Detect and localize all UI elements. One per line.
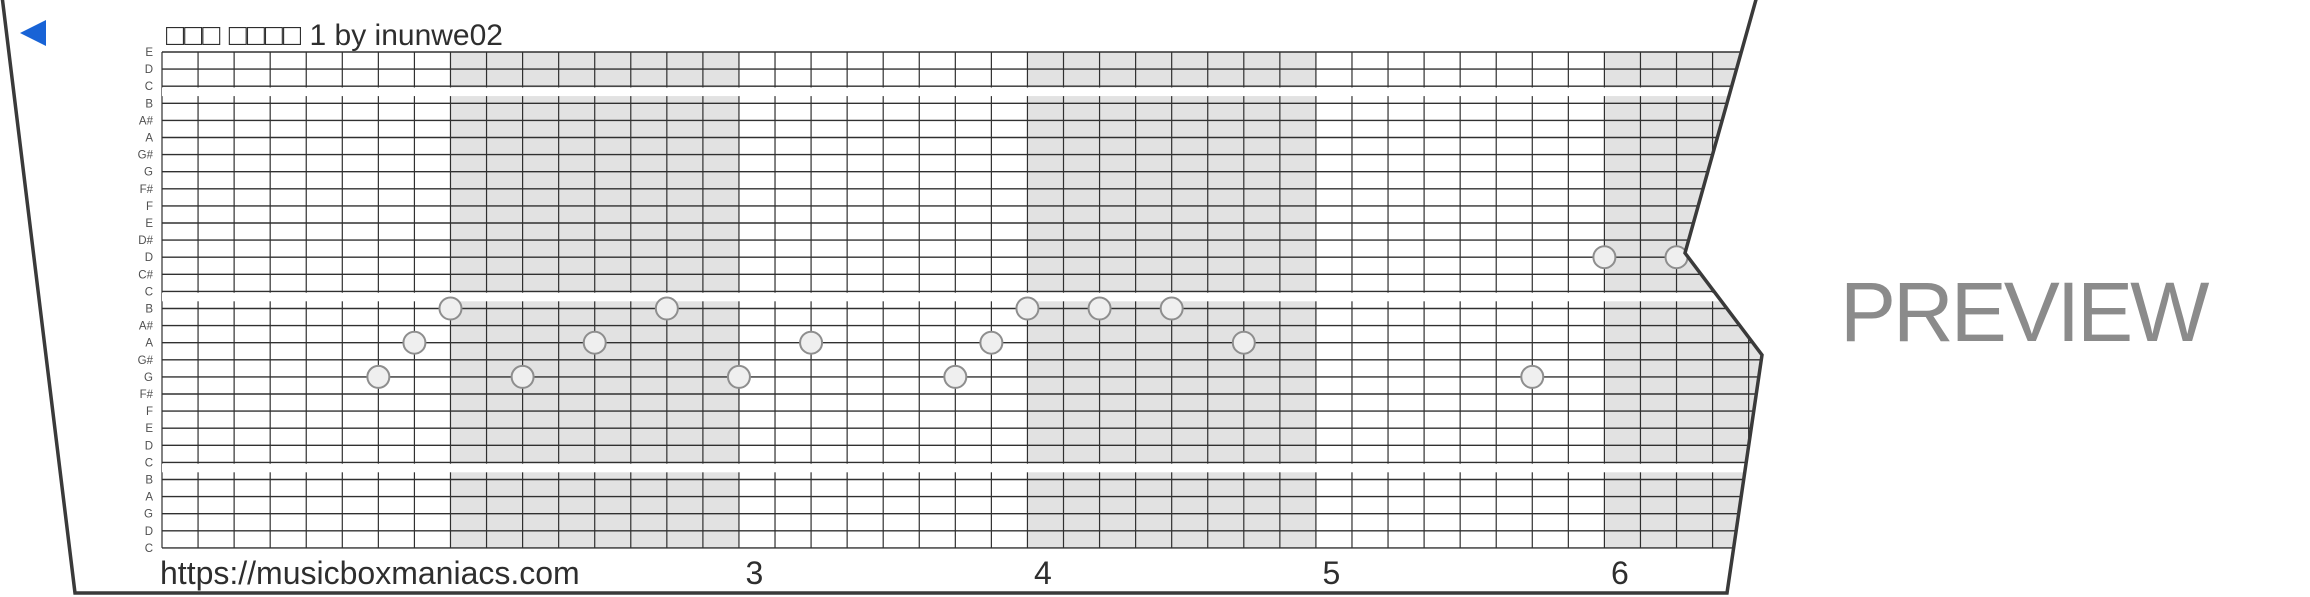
note-label: G: [144, 509, 153, 521]
note-label: A: [145, 338, 153, 350]
note-marker: [1016, 298, 1038, 320]
note-marker: [944, 366, 966, 388]
note-label: F: [146, 201, 153, 213]
note-marker: [1593, 246, 1615, 268]
octave-gap: [162, 88, 1900, 97]
note-marker: [980, 332, 1002, 354]
note-label: A#: [139, 115, 154, 127]
note-marker: [584, 332, 606, 354]
note-label: A: [145, 492, 153, 504]
note-label: G: [144, 372, 153, 384]
note-label: F#: [140, 184, 154, 196]
note-marker: [1521, 366, 1543, 388]
note-label: F: [146, 406, 153, 418]
melody-title: □□□ □□□□ 1 by inunwe02: [166, 19, 503, 52]
note-label: C: [145, 543, 153, 555]
note-label: D: [145, 64, 153, 76]
note-label: C: [145, 81, 153, 93]
note-marker: [1161, 298, 1183, 320]
note-label: C#: [138, 269, 153, 281]
note-label: D#: [138, 235, 153, 247]
beat-number: 6: [1611, 555, 1629, 591]
note-marker: [728, 366, 750, 388]
note-label: D: [145, 526, 153, 538]
note-marker: [403, 332, 425, 354]
beat-number: 5: [1323, 555, 1341, 591]
note-label: D: [145, 252, 153, 264]
note-label: A#: [139, 321, 154, 333]
note-marker: [1233, 332, 1255, 354]
music-strip-preview: EDCBA#AG#GF#FED#DC#CBA#AG#GF#FEDCBAGDC34…: [0, 0, 2310, 597]
note-label: G#: [138, 150, 154, 162]
note-label: E: [145, 47, 153, 59]
beat-number: 3: [746, 555, 764, 591]
note-marker: [656, 298, 678, 320]
site-url[interactable]: https://musicboxmaniacs.com: [160, 555, 580, 591]
note-label: E: [145, 423, 153, 435]
note-marker: [800, 332, 822, 354]
note-label: B: [145, 98, 153, 110]
note-label: D: [145, 440, 153, 452]
note-marker: [512, 366, 534, 388]
note-marker: [439, 298, 461, 320]
note-label: C: [145, 286, 153, 298]
preview-watermark: PREVIEW: [1840, 264, 2206, 361]
note-label: G: [144, 167, 153, 179]
note-label: F#: [140, 389, 154, 401]
note-marker: [1089, 298, 1111, 320]
note-label: A: [145, 133, 153, 145]
note-label: E: [145, 218, 153, 230]
note-label: G#: [138, 355, 154, 367]
octave-gap: [162, 464, 1900, 473]
note-marker: [367, 366, 389, 388]
note-label: C: [145, 457, 153, 469]
note-label: B: [145, 304, 153, 316]
note-label: B: [145, 475, 153, 487]
beat-number: 4: [1034, 555, 1052, 591]
